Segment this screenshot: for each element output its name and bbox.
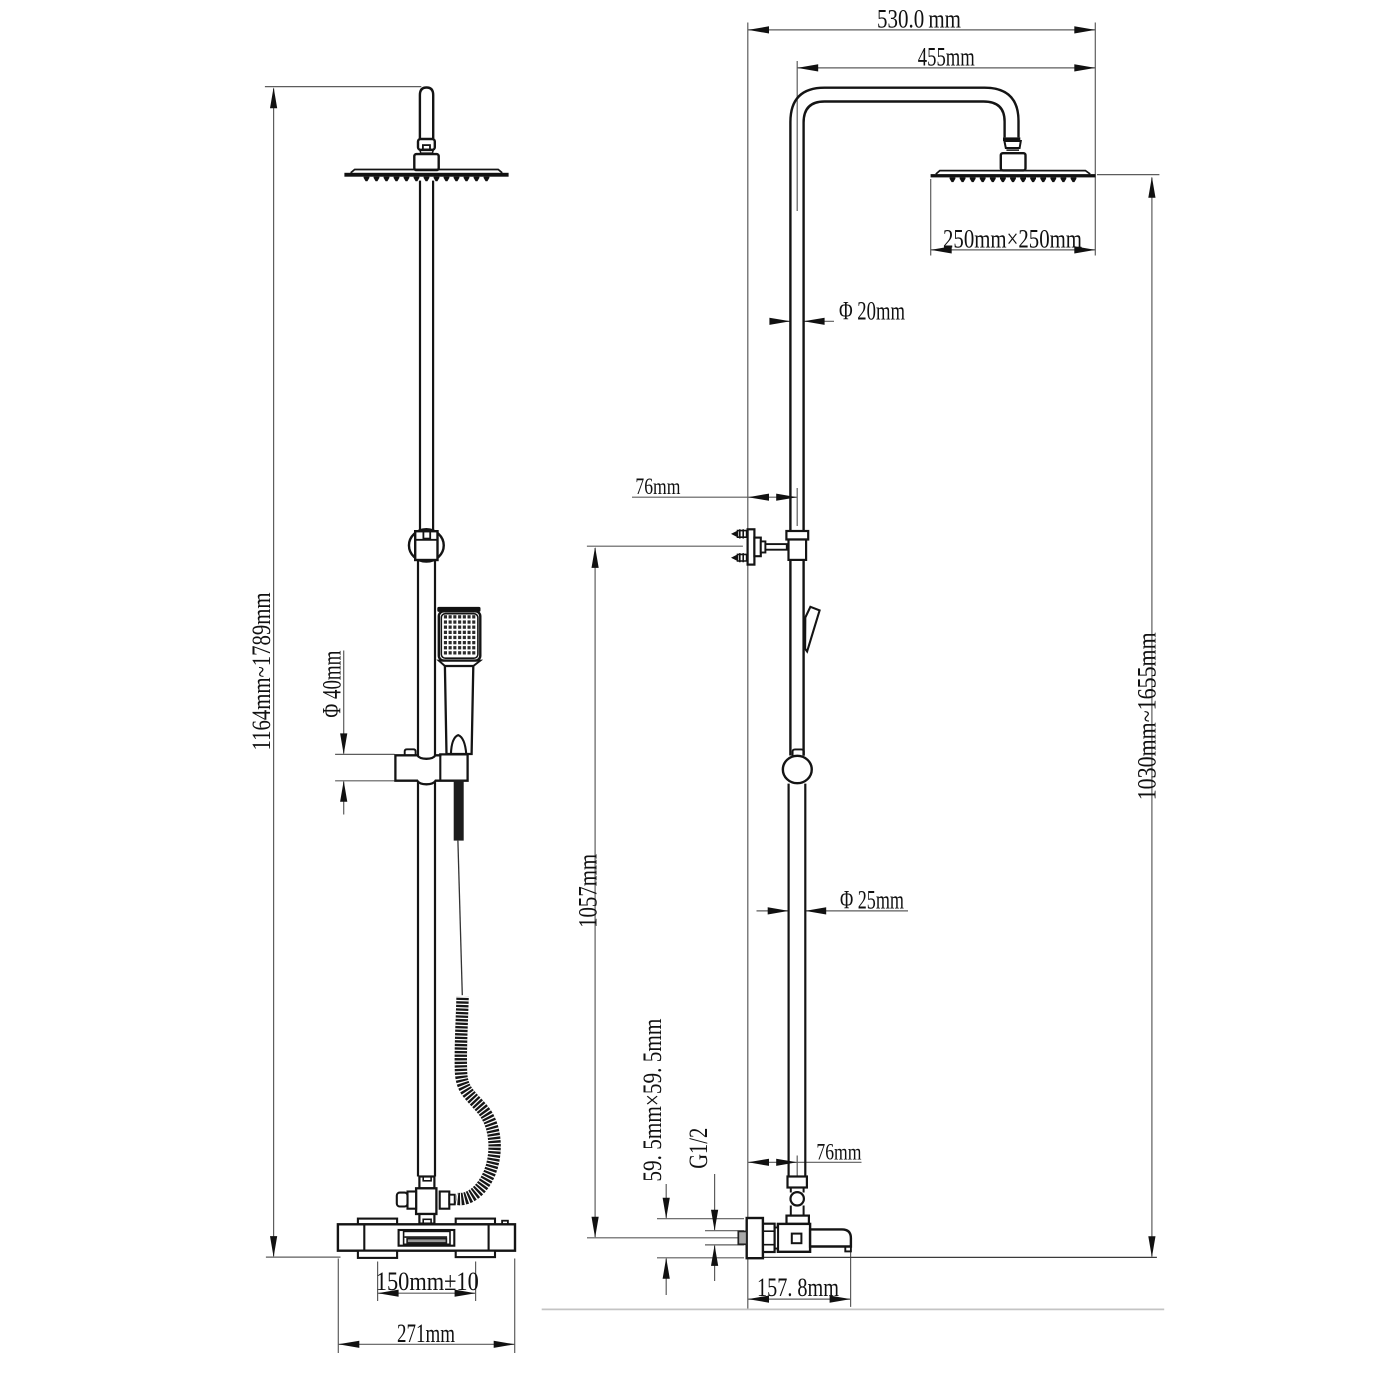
svg-text:455mm: 455mm <box>918 43 975 72</box>
svg-text:76mm: 76mm <box>635 474 680 499</box>
svg-text:1030mm~1655mm: 1030mm~1655mm <box>1133 632 1162 800</box>
svg-text:157. 8mm: 157. 8mm <box>757 1273 839 1302</box>
svg-text:G1/2: G1/2 <box>684 1128 713 1169</box>
svg-text:271mm: 271mm <box>397 1319 455 1348</box>
svg-text:59. 5mm×59. 5mm: 59. 5mm×59. 5mm <box>638 1019 667 1182</box>
svg-text:Φ 25mm: Φ 25mm <box>840 885 904 914</box>
svg-text:150mm±10: 150mm±10 <box>376 1267 479 1296</box>
svg-text:76mm: 76mm <box>816 1140 861 1165</box>
svg-text:530.0 mm: 530.0 mm <box>877 4 961 33</box>
svg-text:Φ 40mm: Φ 40mm <box>318 651 347 718</box>
svg-text:1164mm~1789mm: 1164mm~1789mm <box>247 593 276 751</box>
svg-text:Φ 20mm: Φ 20mm <box>839 297 905 326</box>
svg-text:1057mm: 1057mm <box>573 854 602 928</box>
svg-text:250mm×250mm: 250mm×250mm <box>943 225 1082 254</box>
